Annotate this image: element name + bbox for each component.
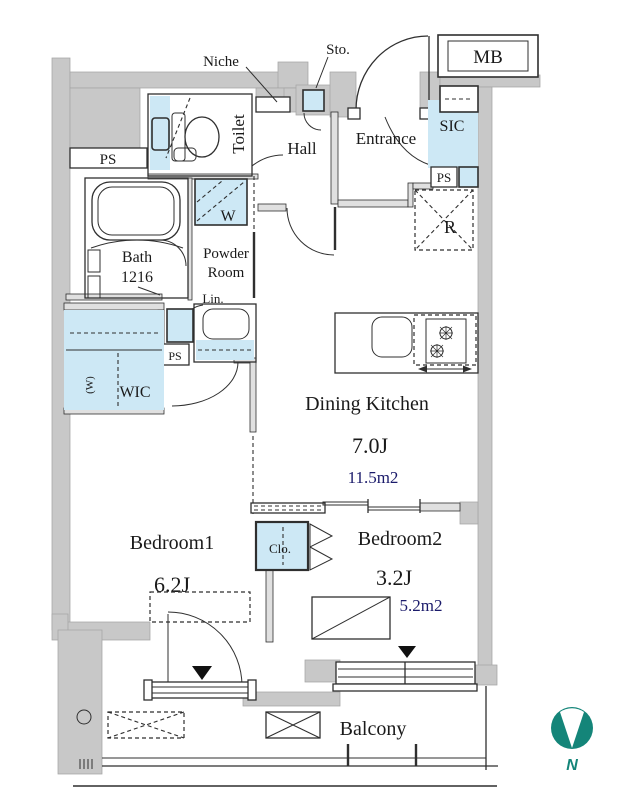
- toilet-room: Toilet: [148, 94, 252, 176]
- wic-area: (W) WIC: [64, 310, 164, 410]
- wic-label: WIC: [119, 384, 150, 401]
- counter-width-arrow: [418, 366, 472, 373]
- toilet-cabinet: [152, 118, 169, 150]
- stove-burner-1: [439, 326, 453, 340]
- hall-dk-door-arc: [287, 208, 334, 255]
- bedroom2-size: 3.2J: [376, 565, 413, 590]
- ac-outdoor-unit: [108, 712, 184, 738]
- storage-box: [303, 90, 324, 111]
- ps-label-powder: PS: [168, 349, 181, 363]
- entrance-door-arc: [356, 36, 428, 110]
- sto-label: Sto.: [326, 42, 350, 58]
- washer-label: W: [220, 208, 236, 225]
- north-label: N: [566, 757, 578, 774]
- meter-box: MB: [438, 35, 538, 77]
- kitchen-counter: [335, 313, 478, 373]
- hall-leader: [252, 155, 283, 166]
- floor-plan: MB Toilet Sto.: [0, 0, 635, 811]
- balcony-label: Balcony: [340, 718, 407, 740]
- powder-label-2: Room: [208, 265, 245, 281]
- niche-label: Niche: [203, 54, 239, 70]
- washroom-door-arc: [172, 362, 238, 406]
- closet-label: Clo.: [269, 541, 291, 556]
- wic-rail-label: (W): [84, 376, 96, 394]
- bath-label: Bath: [122, 249, 152, 266]
- sic-label: SIC: [440, 118, 465, 135]
- sto-leader: [316, 57, 328, 88]
- door-position-marker: [192, 666, 212, 680]
- dk-area: 11.5m2: [348, 468, 399, 487]
- sic-area: SIC PS: [428, 86, 478, 187]
- north-indicator: N: [551, 707, 593, 774]
- refrigerator-label: R: [444, 217, 456, 237]
- closet: Clo.: [256, 522, 332, 570]
- refrigerator-space: R: [415, 190, 473, 250]
- hall-label: Hall: [287, 139, 317, 158]
- balcony-hatch-symbol: [266, 712, 320, 738]
- toilet-label: Toilet: [229, 114, 248, 154]
- closet-folding-doors: [310, 524, 332, 570]
- bath-room: Bath 1216: [85, 178, 188, 298]
- dk-name: Dining Kitchen: [305, 393, 429, 415]
- bath-door-arc: [160, 240, 186, 266]
- niche-recess: [256, 97, 290, 112]
- toilet-fixture: [172, 113, 219, 161]
- entrance-label: Entrance: [356, 129, 416, 148]
- dk-bedroom2-partition: [251, 499, 420, 513]
- washbasin: [194, 304, 256, 362]
- linen-box: [167, 309, 193, 342]
- sic-pipe-box: [459, 167, 478, 187]
- dk-size: 7.0J: [352, 433, 389, 458]
- bedroom2-window: [333, 646, 477, 691]
- bedroom2-name: Bedroom2: [358, 528, 442, 550]
- powder-room: W Powder Room Lin. PS: [161, 179, 256, 365]
- bathtub: [92, 182, 180, 240]
- sliding-door: [323, 499, 420, 513]
- floor-plan-canvas: MB Toilet Sto.: [0, 0, 635, 811]
- bedroom1-balcony-door: [144, 592, 256, 700]
- bath-size-label: 1216: [121, 269, 153, 286]
- ac-slot-dashed: [150, 592, 250, 622]
- bedroom1-name: Bedroom1: [130, 532, 214, 554]
- window-position-marker: [398, 646, 416, 658]
- powder-label-1: Powder: [203, 246, 249, 262]
- ps-label-main: PS: [100, 152, 117, 168]
- bedroom2-furniture: [312, 597, 390, 639]
- bedroom2-area: 5.2m2: [400, 596, 443, 615]
- ps-label-entrance: PS: [437, 170, 451, 185]
- mb-label: MB: [473, 47, 503, 68]
- kitchen-sink: [372, 317, 412, 357]
- storage-door-arc: [304, 113, 321, 130]
- stove-burner-2: [430, 344, 444, 358]
